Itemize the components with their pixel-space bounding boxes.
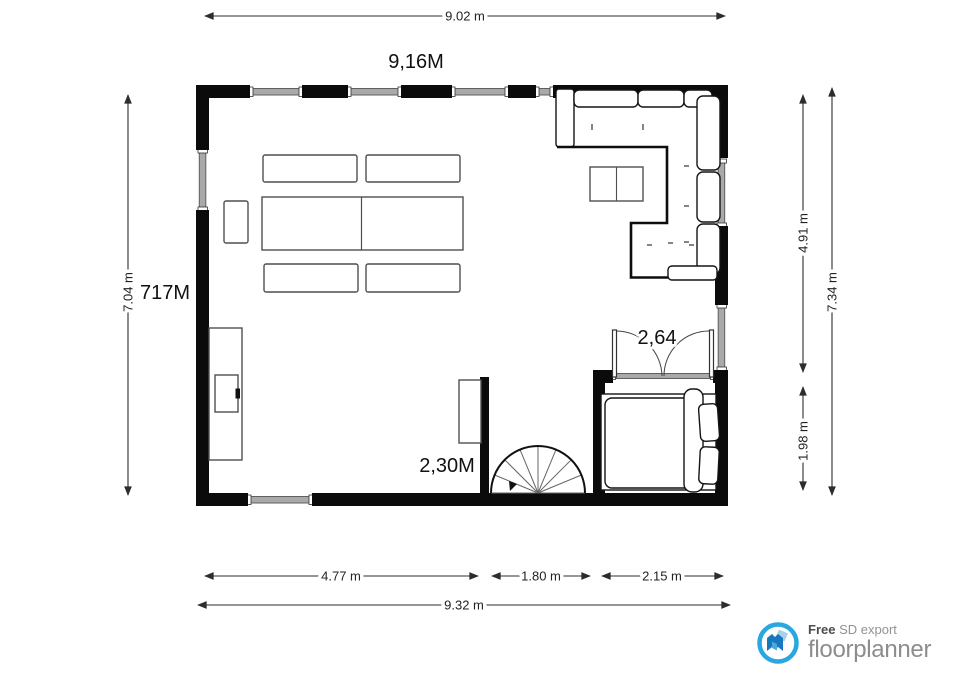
pillow: [699, 447, 720, 485]
side-table: [224, 201, 248, 243]
coffee-table: [590, 167, 643, 201]
label-top-width: 9,16M: [388, 51, 444, 73]
bench: [264, 264, 358, 292]
bench: [366, 155, 460, 182]
dim-bottom-middle: 1.80 m: [521, 569, 561, 584]
sofa-back-cushion: [574, 90, 638, 107]
sofa-armrest-left: [556, 89, 574, 147]
label-stairs-width: 2,30M: [419, 455, 475, 477]
pillow: [698, 403, 720, 441]
dining-table: [262, 197, 463, 250]
dim-bottom-left: 4.77 m: [321, 569, 361, 584]
bed-blanket: [605, 398, 697, 488]
dim-top-total: 9.02 m: [445, 9, 485, 24]
floorplanner-logo-text: Free SD export floorplanner: [808, 621, 931, 662]
floorplan-drawing: 9.02 m 7.04 m 4.91 m 1.98 m 7.34 m 4.77 …: [0, 0, 960, 679]
double-bed: [601, 389, 720, 492]
logo-free-label: Free: [808, 622, 835, 637]
dim-left-total: 7.04 m: [121, 272, 136, 312]
dim-bottom-right: 2.15 m: [642, 569, 682, 584]
door-threshold: [613, 374, 713, 379]
tv-cabinet: [209, 328, 242, 460]
sofa-sectional: [556, 89, 720, 280]
floorplan-canvas: 9.02 m 7.04 m 4.91 m 1.98 m 7.34 m 4.77 …: [0, 0, 960, 679]
stair-direction-arrow: [509, 481, 517, 491]
bedroom-door-jamb-right: [713, 370, 728, 383]
logo-brand-name: floorplanner: [808, 637, 931, 662]
label-door-width: 2,64: [638, 327, 677, 349]
dim-right-total: 7.34 m: [825, 272, 840, 312]
door-leaf-right: [710, 330, 714, 377]
bedroom-door-jamb-left: [593, 370, 613, 383]
dining-area: [224, 155, 463, 292]
dim-bottom-total: 9.32 m: [444, 598, 484, 613]
sofa-back-cushion: [638, 90, 684, 107]
floorplanner-logo: Free SD export floorplanner: [756, 621, 931, 665]
bench: [366, 264, 460, 292]
sofa-back-cushion: [697, 172, 720, 222]
dim-right-lower: 1.98 m: [796, 421, 811, 461]
dim-right-upper: 4.91 m: [796, 213, 811, 253]
sofa-back-cushion: [697, 96, 720, 170]
sofa-armrest-right: [668, 266, 717, 280]
door-leaf-left: [613, 330, 617, 377]
label-left-height: 717M: [140, 282, 190, 304]
spiral-staircase: [491, 446, 585, 493]
bench: [263, 155, 357, 182]
floorplanner-logo-icon: [756, 621, 800, 665]
storage-cabinet: [459, 380, 481, 443]
logo-export-label: SD export: [839, 622, 897, 637]
dimension-lines: 9.02 m 7.04 m 4.91 m 1.98 m 7.34 m 4.77 …: [121, 9, 840, 613]
